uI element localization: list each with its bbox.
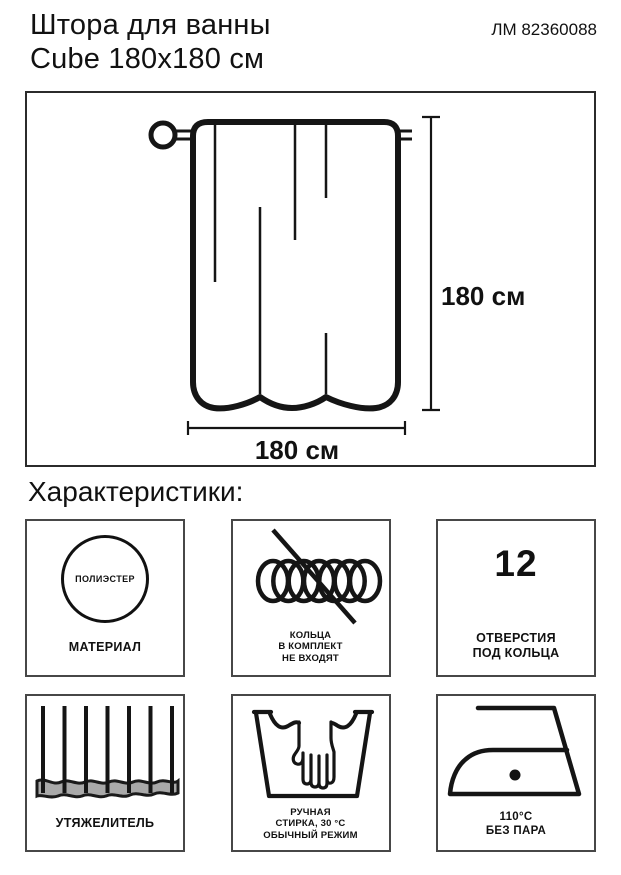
holes-count: 12 xyxy=(494,543,537,585)
feature-ironing: 110°C БЕЗ ПАРА xyxy=(436,694,596,852)
hand xyxy=(293,722,334,788)
material-label: МАТЕРИАЛ xyxy=(27,640,183,655)
product-infographic: Штора для ванны Cube 180x180 см ЛМ 82360… xyxy=(0,0,621,875)
slash-line xyxy=(273,530,355,623)
title-line-1: Штора для ванны xyxy=(30,8,271,42)
hand-wash-icon xyxy=(233,696,389,806)
wash-label: РУЧНАЯ СТИРКА, 30 °C ОБЫЧНЫЙ РЕЖИМ xyxy=(233,807,389,842)
height-dimension-label: 180 см xyxy=(441,281,525,311)
material-circle-icon: ПОЛИЭСТЕР xyxy=(61,535,149,623)
feature-material: ПОЛИЭСТЕР МАТЕРИАЛ xyxy=(25,519,185,677)
feature-hand-wash: РУЧНАЯ СТИРКА, 30 °C ОБЫЧНЫЙ РЕЖИМ xyxy=(231,694,391,852)
characteristics-heading: Характеристики: xyxy=(28,476,243,508)
weighted-hem-icon xyxy=(27,696,183,808)
feature-weighted-hem: УТЯЖЕЛИТЕЛЬ xyxy=(25,694,185,852)
width-dimension-label: 180 см xyxy=(255,435,339,465)
curtain-icon xyxy=(193,122,398,408)
holes-label: ОТВЕРСТИЯ ПОД КОЛЬЦА xyxy=(438,631,594,661)
feature-rings-not-included: КОЛЬЦА В КОМПЛЕКТ НЕ ВХОДЯТ xyxy=(231,519,391,677)
iron-label: 110°C БЕЗ ПАРА xyxy=(438,810,594,838)
weight-label: УТЯЖЕЛИТЕЛЬ xyxy=(27,816,183,831)
feature-ring-holes: 12 ОТВЕРСТИЯ ПОД КОЛЬЦА xyxy=(436,519,596,677)
title-line-2: Cube 180x180 см xyxy=(30,42,271,76)
width-dimension-line xyxy=(188,421,405,435)
water-waves xyxy=(270,714,356,728)
height-dimension-line xyxy=(422,117,440,410)
iron-icon xyxy=(438,696,594,806)
features-grid: ПОЛИЭСТЕР МАТЕРИАЛ КОЛЬЦА В xyxy=(25,519,596,852)
page-title: Штора для ванны Cube 180x180 см xyxy=(30,8,271,76)
crossed-rings-icon xyxy=(233,521,389,627)
material-name: ПОЛИЭСТЕР xyxy=(75,574,135,584)
curtain-diagram: 180 см 180 см xyxy=(27,93,594,465)
rings-label: КОЛЬЦА В КОМПЛЕКТ НЕ ВХОДЯТ xyxy=(233,630,389,665)
temperature-dot xyxy=(510,770,521,781)
article-number: ЛМ 82360088 xyxy=(491,20,597,40)
wash-basin xyxy=(254,712,372,796)
curtain-diagram-box: 180 см 180 см xyxy=(25,91,596,467)
